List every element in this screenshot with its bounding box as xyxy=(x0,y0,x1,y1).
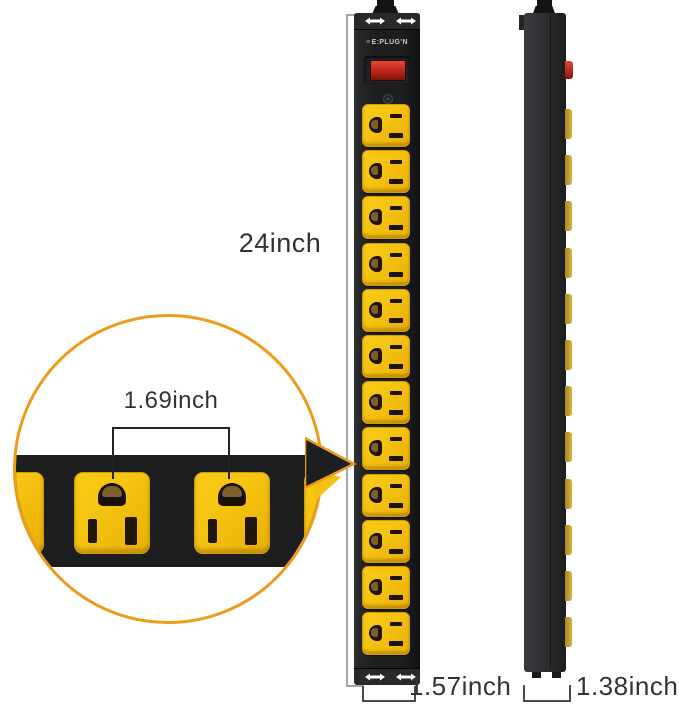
outlet-slot xyxy=(389,595,403,600)
outlet-slot xyxy=(390,114,402,118)
side-outlet-edge xyxy=(565,617,572,647)
ground-hole xyxy=(369,302,382,318)
spacing-dimension-line xyxy=(112,427,230,429)
outlet-partial xyxy=(13,472,44,554)
product-dimension-diagram: 24inch ≡E:PLUG'N xyxy=(0,0,679,705)
outlet-slot xyxy=(389,179,403,184)
outlet-slot xyxy=(390,484,402,488)
outlet-slot xyxy=(389,133,403,138)
side-depth-bracket xyxy=(523,685,571,702)
outlet-slot xyxy=(125,517,137,545)
ground-hole xyxy=(369,209,382,225)
outlet-slot xyxy=(390,206,402,210)
height-label: 24inch xyxy=(225,228,335,259)
outlet-slot xyxy=(88,519,97,543)
side-outlet-edge xyxy=(565,432,572,462)
ground-hole xyxy=(369,579,382,595)
front-outlets xyxy=(354,13,420,684)
outlet-slot xyxy=(389,641,403,646)
ground-hole xyxy=(369,256,382,272)
ground-hole xyxy=(369,348,382,364)
outlet-slot xyxy=(390,160,402,164)
side-outlet-edge xyxy=(565,386,572,416)
ground-hole xyxy=(369,440,382,456)
outlet xyxy=(362,566,410,609)
ground-hole xyxy=(369,394,382,410)
outlet xyxy=(362,381,410,424)
side-foot xyxy=(532,672,541,678)
ground-hole xyxy=(369,487,382,503)
side-outlet-edge xyxy=(565,571,572,601)
strip-cross-section xyxy=(13,455,323,567)
outlet-slot xyxy=(390,253,402,257)
height-dimension-line xyxy=(346,14,348,686)
product-front-view: ≡E:PLUG'N xyxy=(354,13,420,684)
outlet xyxy=(194,472,270,554)
ground-hole xyxy=(369,117,382,133)
ground-hole xyxy=(98,483,126,506)
outlet xyxy=(362,289,410,332)
side-outlet-tabs xyxy=(524,13,566,672)
outlet-slot xyxy=(389,272,403,277)
outlet xyxy=(362,427,410,470)
side-depth-label: 1.38inch xyxy=(576,671,678,702)
outlet xyxy=(362,243,410,286)
keyhole-slot-icon xyxy=(365,673,385,681)
spacing-label: 1.69inch xyxy=(106,387,236,415)
outlet xyxy=(74,472,150,554)
outlet-slot xyxy=(389,456,403,461)
outlet-slot xyxy=(390,576,402,580)
spacing-dimension-leg xyxy=(228,427,230,479)
outlet-slot xyxy=(389,549,403,554)
outlet-slot xyxy=(390,437,402,441)
ground-hole xyxy=(369,163,382,179)
outlet-slot xyxy=(389,410,403,415)
outlet xyxy=(362,150,410,193)
callout-pointer-icon xyxy=(305,437,357,503)
side-foot xyxy=(552,672,561,678)
power-strip-body: ≡E:PLUG'N xyxy=(354,13,420,684)
outlet xyxy=(362,474,410,517)
outlet xyxy=(362,335,410,378)
outlet-slot xyxy=(245,517,257,545)
outlet-slot xyxy=(389,225,403,230)
side-outlet-edge xyxy=(565,340,572,370)
side-outlet-edge xyxy=(565,294,572,324)
outlet-slot xyxy=(390,345,402,349)
product-side-view xyxy=(524,13,566,672)
outlet-slot xyxy=(389,364,403,369)
side-outlet-edge xyxy=(565,525,572,555)
ground-hole xyxy=(369,625,382,641)
outlet-slot xyxy=(389,503,403,508)
outlet-slot xyxy=(390,530,402,534)
side-outlet-edge xyxy=(565,155,572,185)
outlet-slot xyxy=(390,299,402,303)
outlet-slot xyxy=(389,318,403,323)
ground-hole xyxy=(369,533,382,549)
side-outlet-edge xyxy=(565,201,572,231)
ground-hole xyxy=(218,483,246,506)
zoom-callout-circle: 1.69inch xyxy=(13,314,323,624)
outlet-slot xyxy=(390,391,402,395)
outlet-slot xyxy=(208,519,217,543)
side-outlet-edge xyxy=(565,248,572,278)
outlet xyxy=(362,104,410,147)
front-width-bracket xyxy=(362,686,416,702)
side-outlet-edge xyxy=(565,479,572,509)
outlet xyxy=(362,520,410,563)
outlet xyxy=(362,196,410,239)
outlet-slot xyxy=(390,622,402,626)
side-switch-edge xyxy=(565,61,573,79)
outlet xyxy=(362,612,410,655)
front-width-label: 1.57inch xyxy=(409,671,511,702)
side-outlet-edge xyxy=(565,109,572,139)
spacing-dimension-leg xyxy=(112,427,114,479)
